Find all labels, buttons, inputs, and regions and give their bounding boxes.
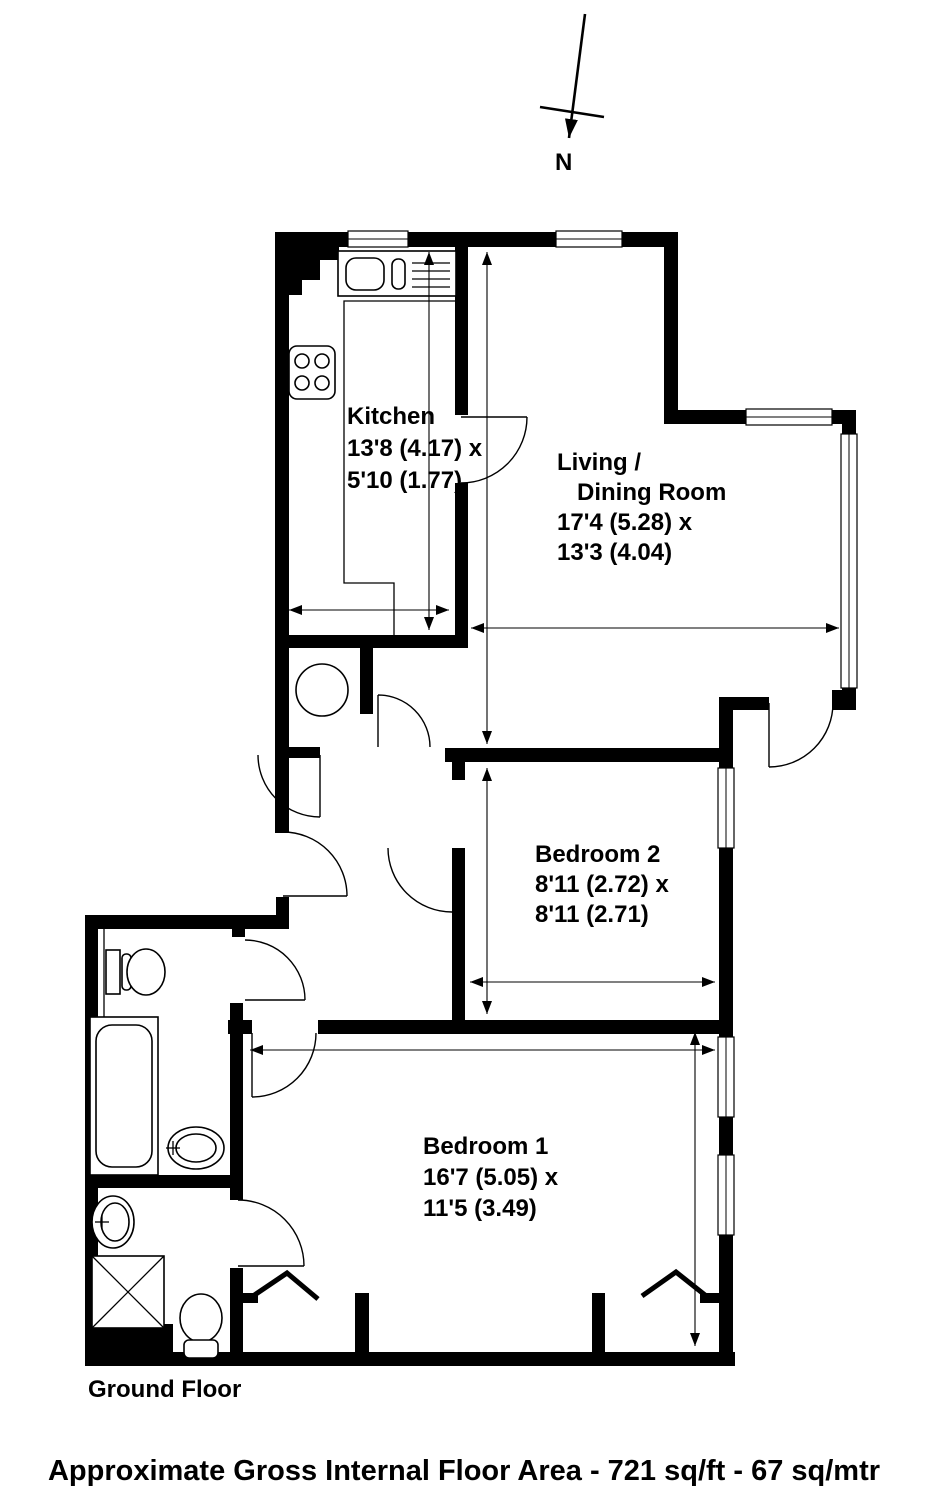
kitchen-dims-1: 13'8 (4.17) x [347, 435, 483, 462]
bedroom1-dims-2: 11'5 (3.49) [423, 1195, 537, 1222]
bedroom1-label: Bedroom 1 [423, 1133, 548, 1160]
bathtub [90, 1017, 158, 1175]
window [718, 1155, 734, 1235]
wc-door-arc [378, 695, 430, 747]
bedroom1-door-arc [252, 1033, 316, 1097]
patio-door-arc [769, 703, 833, 767]
window [348, 231, 408, 247]
bedroom2-label: Bedroom 2 [535, 841, 660, 868]
kitchen-label: Kitchen [347, 403, 435, 430]
bedroom2-dims-2: 8'11 (2.71) [535, 901, 649, 928]
entrance-door-arc [283, 832, 347, 896]
bedroom1-dims-1: 16'7 (5.05) x [423, 1164, 559, 1191]
bedroom2-door-arc [388, 848, 452, 912]
floorplan-page: N Kitchen 13'8 (4.17) x 5'10 (1.77) Livi… [0, 0, 928, 1500]
wash-basin [166, 1127, 224, 1169]
wc-basin [296, 664, 348, 716]
kitchen-sink [338, 251, 456, 296]
room-labels: Kitchen 13'8 (4.17) x 5'10 (1.77) Living… [347, 403, 726, 1222]
window [718, 768, 734, 848]
ensuite-toilet [180, 1294, 222, 1358]
ensuite-basin [92, 1196, 134, 1248]
north-arrow: N [540, 14, 604, 176]
north-label: N [555, 149, 572, 176]
bedroom2-dims-1: 8'11 (2.72) x [535, 871, 669, 898]
windows [348, 231, 857, 1235]
floorplan-drawing: N Kitchen 13'8 (4.17) x 5'10 (1.77) Livi… [0, 0, 928, 1500]
living-dims-2: 13'3 (4.04) [557, 539, 672, 566]
wardrobe-zigzag [250, 1273, 318, 1299]
wardrobe-doors [250, 1272, 710, 1299]
window [718, 1037, 734, 1117]
living-dims-1: 17'4 (5.28) x [557, 509, 693, 536]
window [556, 231, 622, 247]
wardrobe-zigzag [642, 1272, 710, 1299]
bathroom-door-arc [245, 940, 305, 1000]
window [841, 434, 857, 688]
hob [289, 346, 335, 399]
window [746, 409, 832, 425]
kitchen-dims-2: 5'10 (1.77) [347, 467, 462, 494]
living-label-2: Dining Room [577, 479, 726, 506]
toilet [104, 929, 165, 1017]
shower [92, 1256, 164, 1328]
ensuite-door-arc [238, 1200, 304, 1266]
living-label-1: Living / [557, 449, 641, 476]
footer-area-text: Approximate Gross Internal Floor Area - … [48, 1455, 880, 1487]
floor-label: Ground Floor [88, 1376, 241, 1403]
